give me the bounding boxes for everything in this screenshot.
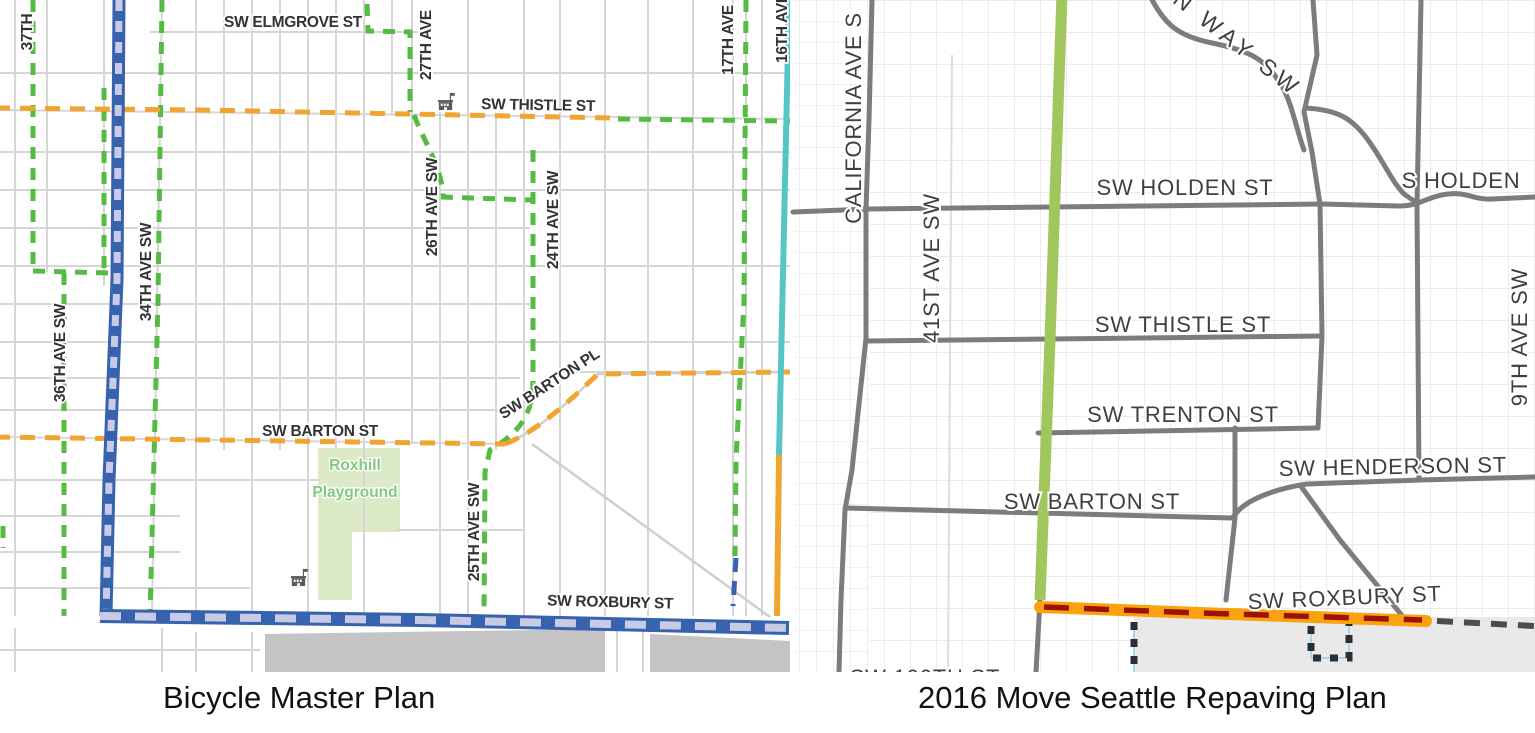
street-label-sw-trenton-st: SW TRENTON ST <box>1087 402 1279 427</box>
school-icon <box>291 569 308 586</box>
caption-band: Bicycle Master Plan 2016 Move Seattle Re… <box>0 672 1535 733</box>
repaving-plan-map: CALIFORNIA AVE S 41ST AVE SW N WAY SW SW… <box>790 0 1535 672</box>
street-label-sw-thistle-st: SW THISTLE ST <box>481 96 596 115</box>
street-label-s-holden: S HOLDEN <box>1402 168 1521 193</box>
street-label-25th-ave-sw: 25TH AVE SW <box>466 482 483 581</box>
street-label-9th-ave-sw: 9TH AVE SW <box>1507 268 1532 406</box>
street-label-26th-ave-sw: 26TH AVE SW <box>424 157 441 256</box>
left-map-labels: 37TH SW ELMGROVE ST 27TH AVE SW THISTLE … <box>19 0 790 613</box>
orange-barton <box>0 437 505 444</box>
gray-fill-areas <box>265 629 790 672</box>
school-icon <box>438 93 455 110</box>
teal-trail-16th <box>779 0 789 455</box>
street-label-sw-barton-st-right: SW BARTON ST <box>1004 489 1180 514</box>
street-label-17th-ave: 17TH AVE <box>720 5 737 75</box>
greenway-24th-25th <box>484 150 533 616</box>
bicycle-master-plan-map: 37TH SW ELMGROVE ST 27TH AVE SW THISTLE … <box>0 0 790 672</box>
street-label-sw-holden-st: SW HOLDEN ST <box>1096 175 1273 200</box>
street-label-41st-ave-sw: 41ST AVE SW <box>919 193 944 343</box>
street-label-california-ave: CALIFORNIA AVE S <box>841 12 866 224</box>
park-label-roxhill: Roxhill <box>329 457 381 474</box>
orange-16th-segment <box>777 455 779 616</box>
street-label-24th-ave-sw: 24TH AVE SW <box>545 170 562 269</box>
greenway-26th-connector <box>441 197 533 200</box>
street-label-sw-barton-st: SW BARTON ST <box>262 423 379 440</box>
map-comparison-figure: 37TH SW ELMGROVE ST 27TH AVE SW THISTLE … <box>0 0 1535 733</box>
street-label-16th-ave: 16TH AVE <box>774 0 790 63</box>
street-label-sw-thistle-st-right: SW THISTLE ST <box>1095 312 1271 337</box>
map-panels: 37TH SW ELMGROVE ST 27TH AVE SW THISTLE … <box>0 0 1535 672</box>
street-label-34th-ave-sw: 34TH AVE SW <box>138 222 155 321</box>
greenway-elmgrove-loop <box>367 4 410 112</box>
street-label-36th-ave-sw: 36TH AVE SW <box>52 303 69 402</box>
blue-lane-roxbury-base <box>100 616 789 628</box>
greenway-connector <box>33 271 110 273</box>
right-map-caption: 2016 Move Seattle Repaving Plan <box>918 680 1387 716</box>
greenway-17th <box>735 0 746 556</box>
left-map-caption: Bicycle Master Plan <box>163 680 435 716</box>
park-label-playground: Playground <box>312 484 397 501</box>
street-label-sw-roxbury-st: SW ROXBURY ST <box>547 592 674 612</box>
street-label-sw-100th-st: SW 100TH ST <box>850 665 1001 672</box>
street-label-sw-elmgrove-st: SW ELMGROVE ST <box>224 14 363 31</box>
street-label-27th-ave: 27TH AVE <box>418 10 435 80</box>
street-label-37th: 37TH <box>19 14 36 51</box>
street-label-sw-henderson-st: SW HENDERSON ST <box>1278 452 1507 481</box>
